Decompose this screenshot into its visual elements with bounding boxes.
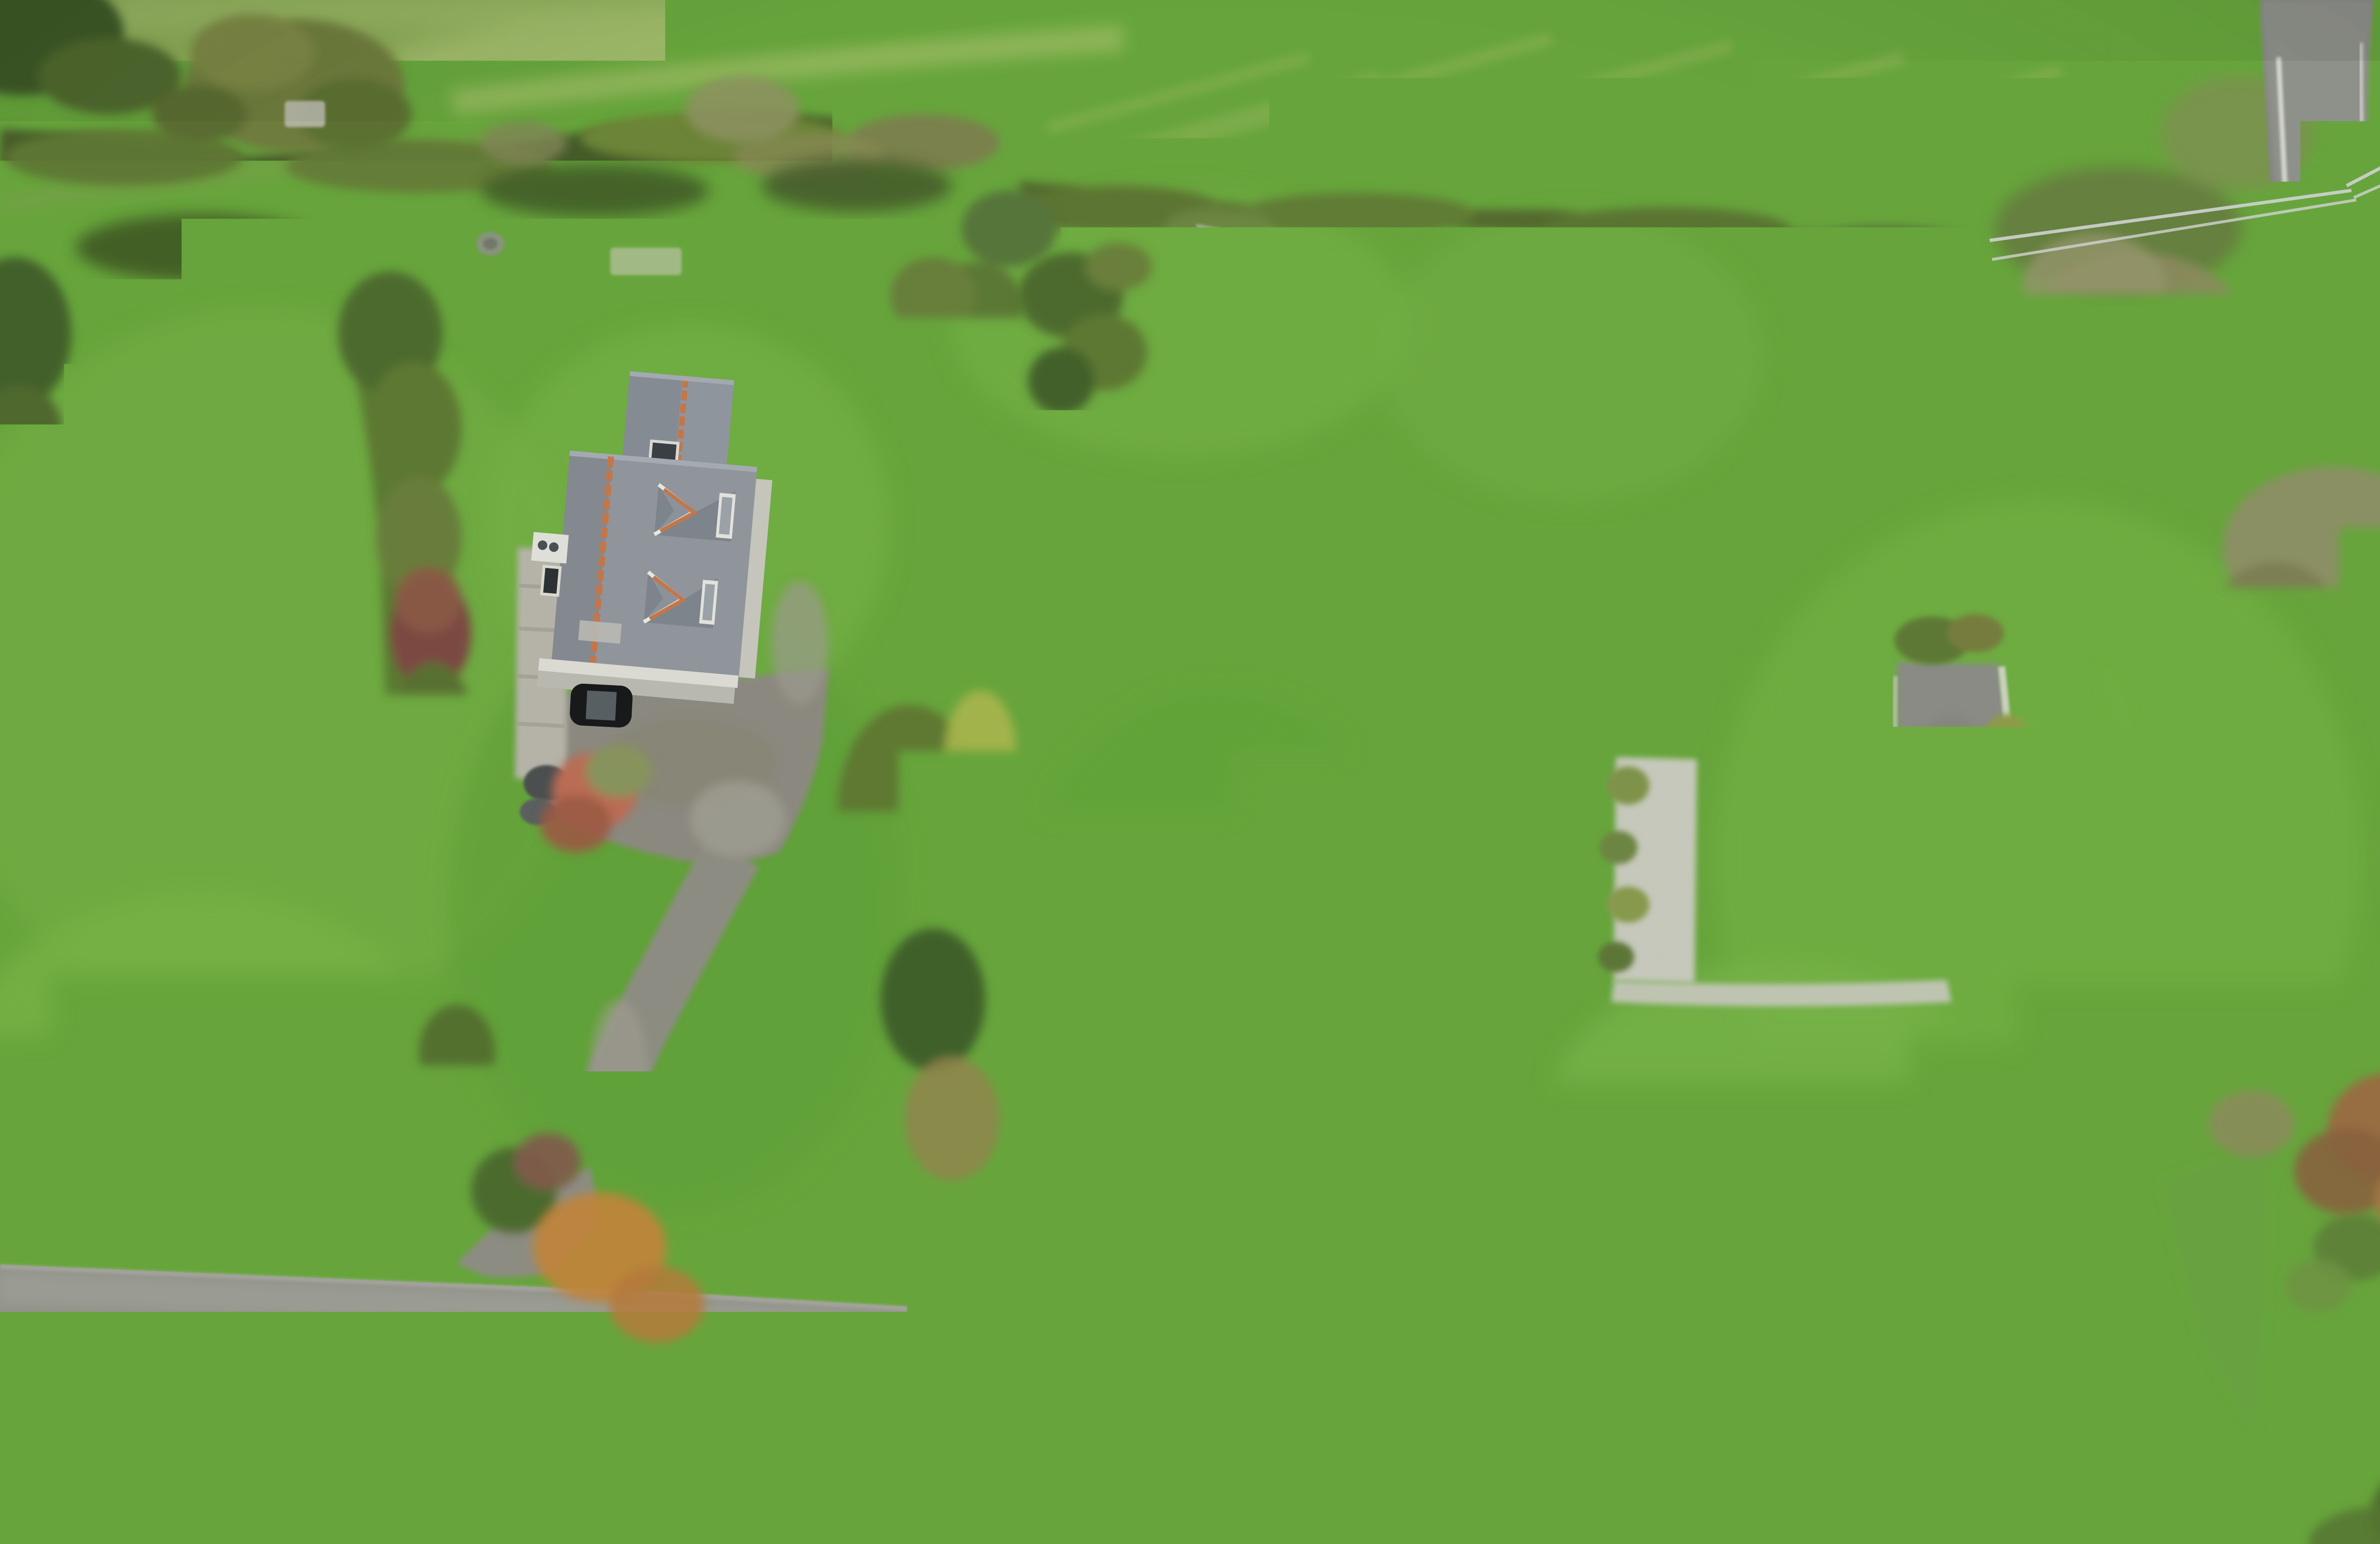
svg-text:NB: For identification purpose: NB: For identification purposes only.	[1871, 1452, 2380, 1504]
